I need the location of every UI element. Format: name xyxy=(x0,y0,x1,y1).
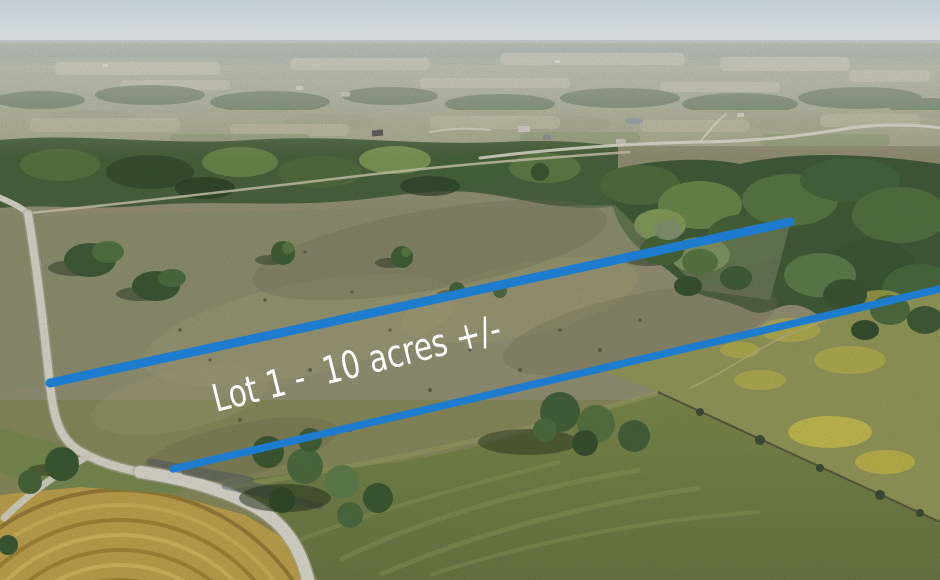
photo-grain xyxy=(0,40,940,580)
aerial-photo-svg: Lot 1 - 10 acres +/- xyxy=(0,0,940,580)
aerial-photo: Lot 1 - 10 acres +/- xyxy=(0,0,940,580)
